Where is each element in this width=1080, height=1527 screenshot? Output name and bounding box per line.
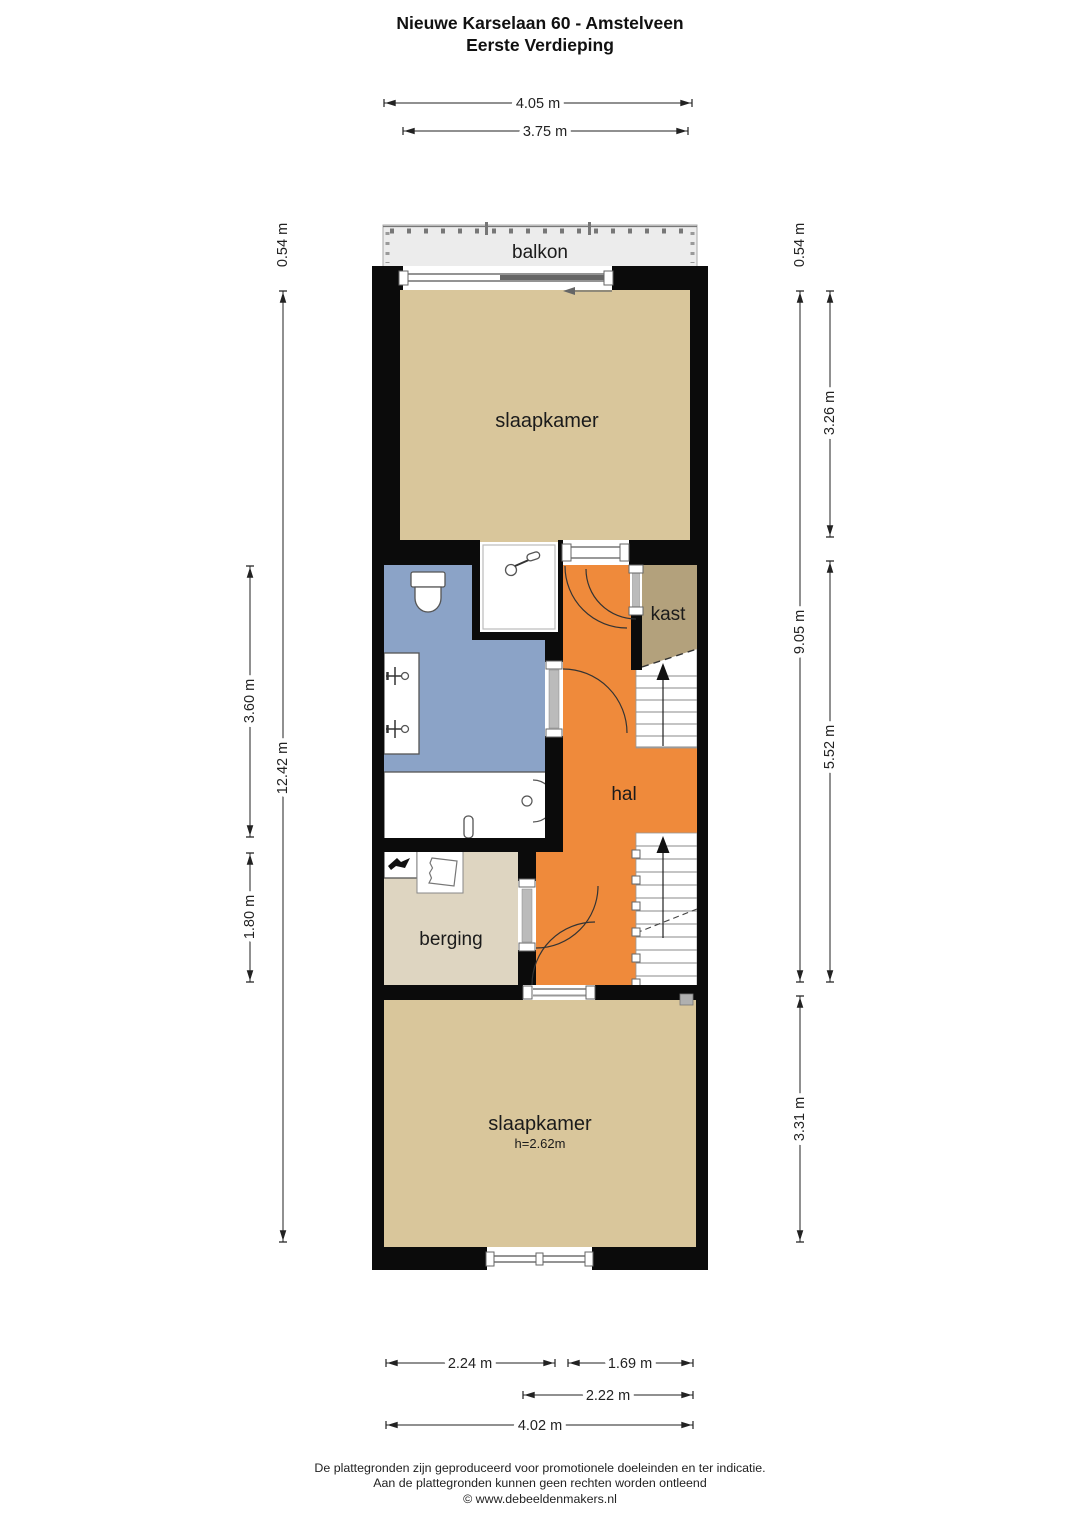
balcony: balkon <box>383 222 697 267</box>
dim-label: 3.31 m <box>792 1097 808 1141</box>
dim-label: 2.24 m <box>448 1356 492 1372</box>
dimension-left-storage: 1.80 m <box>242 853 258 982</box>
wall-column <box>680 994 693 1005</box>
bedroom-top-label: slaapkamer <box>495 410 599 432</box>
dim-label: 4.05 m <box>516 96 560 112</box>
closet-label: kast <box>651 604 687 625</box>
toilet-tank-icon <box>411 572 445 587</box>
dim-label: 3.75 m <box>523 124 567 140</box>
dim-label: 4.02 m <box>518 1418 562 1434</box>
dim-label: 3.26 m <box>822 391 838 435</box>
dim-label: 0.54 m <box>792 223 808 267</box>
room-hall-landing-floor <box>637 746 697 833</box>
dim-label: 1.69 m <box>608 1356 652 1372</box>
vanity <box>384 653 419 754</box>
dim-label: 0.54 m <box>275 223 291 267</box>
vanity-counter <box>384 653 419 754</box>
dimension-bottom-overall: 4.02 m <box>386 1418 693 1434</box>
shower-head-icon <box>506 565 517 576</box>
disclaimer-line-1: De plattegronden zijn geproduceerd voor … <box>0 1461 1080 1476</box>
sink-basin-icon <box>429 858 457 886</box>
dimension-right-bedroom-top: 3.26 m <box>822 291 838 537</box>
disclaimer-line-2: Aan de plattegronden kunnen geen rechten… <box>0 1476 1080 1491</box>
railing-post-icon <box>485 222 488 235</box>
stairs-lower-box <box>636 833 697 987</box>
dimension-bottom-left-inner: 2.24 m <box>386 1356 555 1372</box>
dim-label: 1.80 m <box>242 895 258 939</box>
dimension-right-hall: 5.52 m <box>822 561 838 982</box>
dim-label: 9.05 m <box>792 610 808 654</box>
bedroom-bottom-label: slaapkamer <box>488 1113 592 1135</box>
balcony-label: balkon <box>512 242 568 263</box>
dimension-right-balcony: 0.54 m <box>792 223 808 267</box>
dimension-bottom-right-inner: 1.69 m <box>568 1356 693 1372</box>
dimension-left-total: 12.42 m <box>275 291 291 1242</box>
bedroom-bottom-height-label: h=2.62m <box>515 1136 566 1151</box>
dimension-left-bathroom: 3.60 m <box>242 566 258 837</box>
dim-label: 2.22 m <box>586 1388 630 1404</box>
storage-label: berging <box>419 929 482 950</box>
room-hall-floor <box>563 563 637 987</box>
room-hall-floor-strip <box>536 840 563 987</box>
dimension-top-inner: 3.75 m <box>403 124 688 140</box>
bathtub-tap-icon <box>464 816 473 838</box>
dimension-left-balcony: 0.54 m <box>275 223 291 267</box>
dim-label: 3.60 m <box>242 679 258 723</box>
floorplan-canvas: balkon <box>0 0 1080 1527</box>
dimension-top-overall: 4.05 m <box>384 96 692 112</box>
hall-label: hal <box>611 784 636 805</box>
dimension-right-upper-total: 9.05 m <box>792 291 808 982</box>
dimension-right-bedroom-bottom: 3.31 m <box>792 996 808 1242</box>
railing-post-icon <box>588 222 591 235</box>
slider-panel-icon <box>500 275 606 280</box>
shower-tray <box>480 542 558 632</box>
disclaimer-footer: De plattegronden zijn geproduceerd voor … <box>0 1461 1080 1507</box>
staircase-lower <box>632 833 697 987</box>
bathtub <box>384 772 560 840</box>
dim-label: 5.52 m <box>822 725 838 769</box>
toilet-bowl-icon <box>415 587 441 612</box>
dim-label: 12.42 m <box>275 742 291 794</box>
floorplan-page: Nieuwe Karselaan 60 - Amstelveen Eerste … <box>0 0 1080 1527</box>
bedroom-bottom-window <box>486 1247 593 1270</box>
shower <box>480 542 558 632</box>
copyright-line: © www.debeeldenmakers.nl <box>0 1492 1080 1507</box>
dimension-bottom-inner2: 2.22 m <box>523 1388 693 1404</box>
